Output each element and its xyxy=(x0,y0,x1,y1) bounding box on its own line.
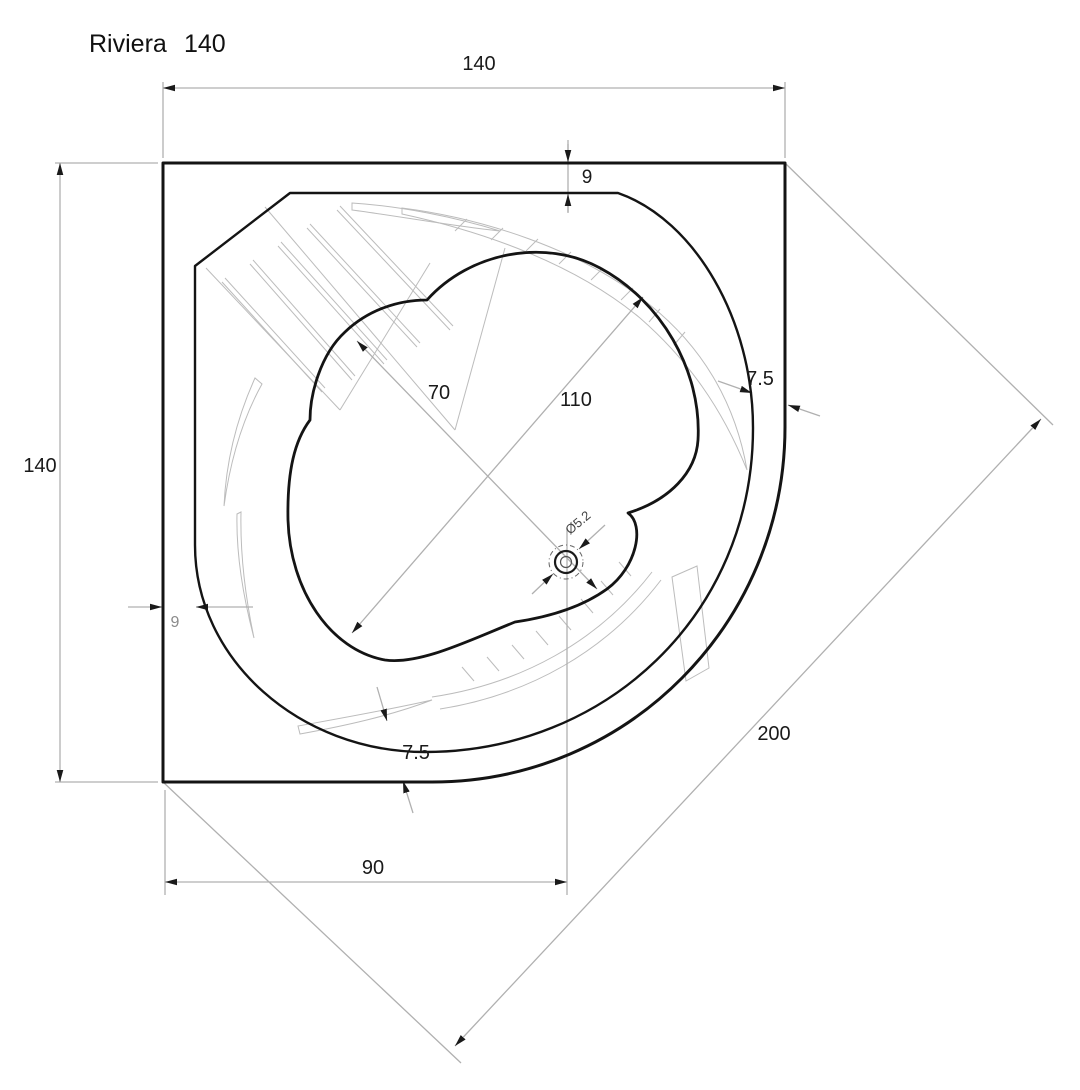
dim-rim-right-label: 7.5 xyxy=(746,368,774,390)
dim-basin-diag-short-label: 70 xyxy=(428,382,450,404)
dim-basin-diag-long-label: 110 xyxy=(560,389,592,411)
dim-top-width-label: 140 xyxy=(462,53,495,75)
dim-rim-left-label: 9 xyxy=(171,614,180,631)
dim-left-height-label: 140 xyxy=(23,455,56,477)
dim-drain-from-left-label: 90 xyxy=(362,857,384,879)
dim-rim-top-label: 9 xyxy=(582,167,593,188)
technical-drawing-bathtub-plan: Riviera 140 140 140 9 9 7.5 7.5 70 110 9… xyxy=(0,0,1080,1090)
dim-front-edge-label: 200 xyxy=(757,723,790,745)
drawing-title-brand: Riviera xyxy=(89,30,167,58)
dim-rim-bottom-label: 7.5 xyxy=(402,742,430,764)
drawing-title-model: 140 xyxy=(184,30,226,58)
